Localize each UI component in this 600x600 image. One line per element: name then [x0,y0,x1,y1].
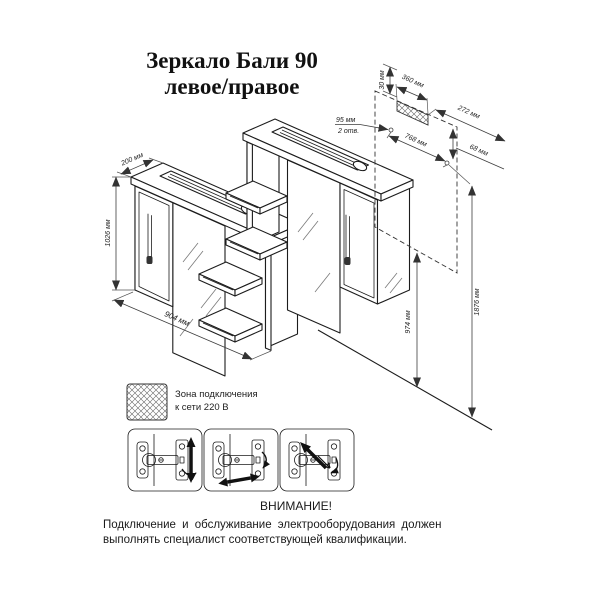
technical-drawing-page: Зеркало Бали 90 левое/правое [0,0,600,600]
warning-heading: ВНИМАНИЕ! [260,499,332,513]
floor-line [318,330,492,430]
right-cabinet-drawing [226,119,413,333]
right-door-handle [345,257,351,265]
right-cabinet-mirror [288,160,341,333]
dim-cabinet-height-label: 1026 мм [105,219,112,246]
mirror-cabinet-drawing: Зеркало Бали 90 левое/правое [0,0,600,600]
legend: Зона подключения к сети 220 В [127,384,258,420]
page-title: Зеркало Бали 90 левое/правое [146,48,318,99]
dim-68: 68 мм [468,143,489,157]
dim-total-height: 1876 мм [474,288,481,315]
dim-zone-top-offset: 30 мм [379,70,386,90]
dim-bottom-height: 974 мм [405,310,412,333]
dim-holes-offset: 95 мм [336,117,356,124]
warning-block: ВНИМАНИЕ! Подключение и обслуживание эле… [103,499,441,546]
title-line-1: Зеркало Бали 90 [146,48,318,73]
dim-zone-width: 360 мм [401,74,425,90]
dim-272: 272 мм [456,104,481,120]
holes-count-note: 2 отв. [337,128,359,135]
holes-offset-label: 95 мм 2 отв. [335,117,388,135]
crosshatch-swatch-icon [127,384,167,420]
warning-line-2: выполнять специалист соответствующей ква… [103,534,407,546]
title-line-2: левое/правое [165,74,300,99]
left-cabinet-mirror [173,203,225,376]
warning-line-1: Подключение и обслуживание электрооборуд… [103,519,441,531]
left-cabinet-door [135,186,173,307]
power-connection-zone [397,101,428,125]
mounting-hole-left [389,128,393,132]
left-door-handle [147,256,153,264]
legend-line-2: к сети 220 В [175,402,229,413]
hinge-adjustment-diagrams [128,429,354,491]
dim-holes-spacing: 768 мм [404,133,428,149]
right-cabinet-side-panel [378,186,410,304]
mounting-hole-right [445,161,449,165]
legend-line-1: Зона подключения [175,389,258,400]
